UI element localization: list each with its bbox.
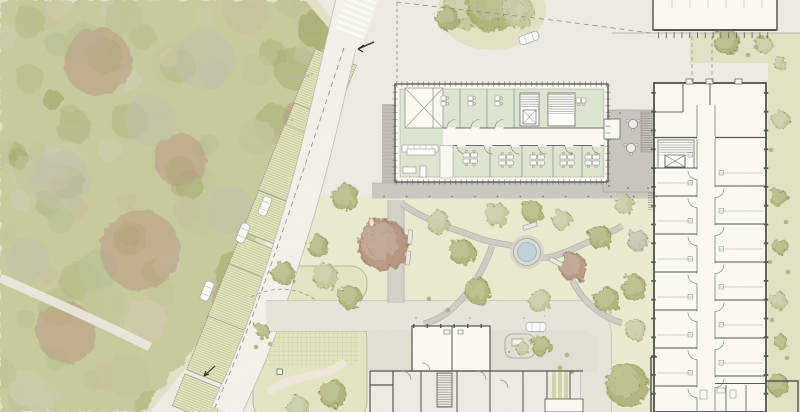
paper-grain-overlay (0, 0, 800, 412)
site-plan (0, 0, 800, 412)
site-plan-canvas (0, 0, 800, 412)
